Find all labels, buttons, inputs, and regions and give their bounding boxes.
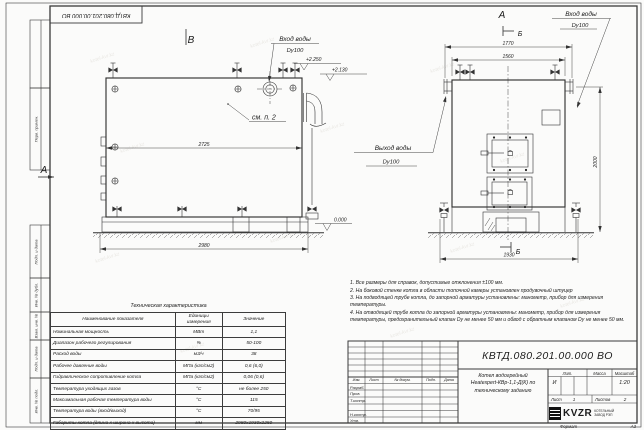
format-label: Формат bbox=[560, 424, 577, 429]
table-row: Гидравлическое сопротивление котлаМПа (к… bbox=[51, 372, 286, 383]
dim-2725: 2725 bbox=[197, 142, 209, 148]
format-row: Формат А3 bbox=[560, 424, 636, 429]
table-row: Температура уходящих газов°Сне более 250 bbox=[51, 383, 286, 394]
note-2: 2. На боковой стенке котла в области топ… bbox=[350, 288, 638, 295]
row-tkontr: Т.контр. bbox=[350, 398, 366, 403]
outlet-label: Выход воды bbox=[375, 144, 412, 152]
lower-door bbox=[481, 177, 532, 210]
side-flanges bbox=[444, 79, 573, 94]
mass-label: Масса bbox=[587, 371, 612, 376]
position-marks bbox=[112, 85, 296, 184]
designation-stamp: КВТД.080.201.00.000 ВО bbox=[50, 6, 142, 23]
outlet-duct bbox=[304, 93, 327, 219]
dim-1560: 1560 bbox=[502, 54, 513, 60]
elev-2130: +2.130 bbox=[332, 68, 348, 74]
col-units: Единицы измерения bbox=[175, 313, 222, 327]
inlet-size-front: Dy100 bbox=[572, 23, 590, 29]
boiler-side-view bbox=[93, 63, 326, 238]
sheet-value: 1 bbox=[568, 397, 580, 402]
tech-table-header-row: Наименование показателя Единицы измерени… bbox=[51, 313, 286, 327]
dim-1770: 1770 bbox=[502, 41, 513, 47]
dim-2000: 2000 bbox=[593, 156, 599, 168]
view-a-label: А bbox=[498, 10, 506, 21]
lit-label: Лит. bbox=[548, 371, 587, 376]
elev-2250: +2.250 bbox=[306, 57, 322, 63]
table-row: Габариты котла (длина х ширина х высота)… bbox=[51, 418, 286, 429]
col-data: Дата bbox=[440, 378, 458, 382]
section-b-bottom: Б bbox=[516, 249, 521, 256]
table-row: Номинальная мощностьМВт1,1 bbox=[51, 327, 286, 338]
dim-1930: 1930 bbox=[503, 253, 514, 259]
doc-number: КВТД.080.201.00.000 ВО bbox=[460, 345, 635, 367]
view-b-label: В bbox=[188, 35, 195, 46]
drawing-title: Котел водогрейный Heatexpert-КВр-1,1-Д(К… bbox=[459, 373, 547, 395]
table-row: Диапазон рабочего регулирования%50-100 bbox=[51, 338, 286, 349]
scale-label: Масштаб bbox=[612, 371, 637, 376]
table-row: Максимальная рабочая температура воды°С1… bbox=[51, 395, 286, 406]
logo-text: KVZR bbox=[563, 408, 592, 419]
tech-table: Наименование показателя Единицы измерени… bbox=[50, 312, 286, 430]
margin-label-inv-dubl: Инв. № дубл. bbox=[30, 278, 41, 312]
scale-value: 1:20 bbox=[612, 380, 637, 386]
boiler-front-view bbox=[428, 65, 594, 240]
sheets-value: 2 bbox=[618, 397, 632, 402]
outlet-size: Dy100 bbox=[383, 160, 401, 166]
elev-0000: 0.000 bbox=[334, 218, 347, 224]
section-b-top: Б bbox=[518, 31, 523, 38]
dim-2980: 2980 bbox=[197, 243, 209, 249]
designation-stamp-text: КВТД.080.201.00.000 ВО bbox=[62, 12, 130, 18]
note-1: 1. Все размеры для справок, допустимые о… bbox=[350, 280, 638, 287]
sheet-label: Лист bbox=[551, 397, 562, 402]
title-line-2: Heatexpert-КВр-1,1-Д(К) по bbox=[459, 380, 547, 387]
inlet-label-front: Вход воды bbox=[565, 10, 597, 18]
drawing-sheet: kotel-kvr.kz kotel-kvr.kz kotel-kvr.kz k… bbox=[0, 0, 644, 430]
tech-table-title: Техническая характеристика bbox=[51, 303, 286, 309]
row-utv: Утв. bbox=[350, 418, 359, 423]
logo-mark-icon bbox=[549, 407, 561, 420]
upper-door bbox=[481, 134, 533, 173]
dimensions bbox=[38, 19, 611, 264]
margin-label-vzam-inv: Взам. инв. № bbox=[30, 312, 41, 340]
logo-subtitle: КОТЕЛЬНЫЙ ЗАВОД РЭП bbox=[594, 409, 614, 417]
margin-label-inv-podl: Инв. № подл. bbox=[30, 378, 41, 423]
bottom-valves bbox=[112, 206, 246, 217]
title-line-1: Котел водогрейный bbox=[459, 373, 547, 380]
lit-value: И bbox=[548, 380, 561, 386]
note-3: 3. На подводящей трубе котла, до запорно… bbox=[350, 295, 638, 308]
manufacturer-logo: KVZR КОТЕЛЬНЫЙ ЗАВОД РЭП bbox=[549, 404, 636, 422]
col-name: Наименование показателя bbox=[51, 313, 176, 327]
note-4: 4. На отводящей трубе котла до запорной … bbox=[350, 310, 638, 323]
margin-label-podp-data-1: Подп. и дата bbox=[30, 225, 41, 278]
col-value: Значение bbox=[222, 313, 285, 327]
table-row: Рабочее давление водыМПа (кгс/см2)0,6 (6… bbox=[51, 361, 286, 372]
inlet-label-side: Вход воды bbox=[279, 35, 311, 43]
inlet-size-side: Dy100 bbox=[287, 48, 305, 54]
row-razrab: Разраб. bbox=[350, 385, 364, 390]
row-prov: Пров. bbox=[350, 391, 361, 396]
format-value: А3 bbox=[631, 424, 636, 429]
table-row: Расход водым3/ч38 bbox=[51, 349, 286, 360]
table-row: Температура воды (вход/выход)°С70/95 bbox=[51, 406, 286, 417]
col-dokum: № докум. bbox=[383, 378, 422, 382]
logo-sub-line-2: ЗАВОД РЭП bbox=[594, 413, 614, 417]
margin-label-podp-data-2: Подп. и дата bbox=[30, 340, 41, 378]
sheets-label: Листов bbox=[595, 397, 610, 402]
see-note-label: см. п. 2 bbox=[252, 115, 276, 122]
col-podp: Подп. bbox=[422, 378, 440, 382]
col-list: Лист bbox=[365, 378, 383, 382]
row-nkontr: Н.контр. bbox=[350, 412, 367, 417]
margin-label-perv-primen: Перв. примен. bbox=[30, 88, 41, 170]
col-izm: Изм. bbox=[348, 378, 365, 382]
title-line-3: техническому заданию bbox=[459, 388, 547, 395]
notes-block: 1. Все размеры для справок, допустимые о… bbox=[350, 280, 638, 324]
